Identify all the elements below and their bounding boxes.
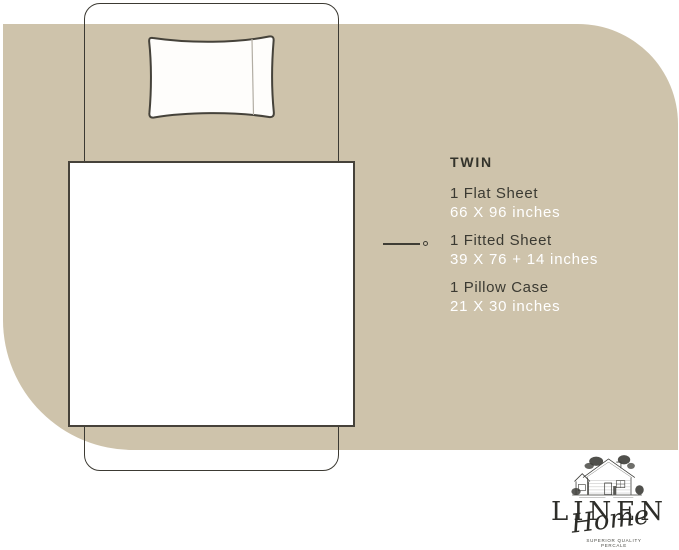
pointer-line: [383, 240, 428, 247]
spec-value: 39 X 76 + 14 inches: [450, 250, 670, 269]
pillow-case-icon: [146, 31, 277, 121]
spec-row-flat-sheet: 1 Flat Sheet 66 X 96 inches: [450, 184, 670, 222]
brand-logo: LINEN Home SUPERIOR QUALITY PERCALE: [540, 450, 674, 550]
spec-label: 1 Flat Sheet: [450, 184, 670, 203]
spec-list: TWIN 1 Flat Sheet 66 X 96 inches 1 Fitte…: [450, 152, 670, 325]
spec-value: 66 X 96 inches: [450, 203, 670, 222]
spec-label: 1 Pillow Case: [450, 278, 670, 297]
flat-sheet-shape: [68, 161, 355, 427]
pointer-line-stroke: [383, 243, 420, 245]
brand-tagline: SUPERIOR QUALITY PERCALE: [554, 538, 674, 548]
pointer-dot-icon: [423, 241, 428, 246]
size-title: TWIN: [450, 152, 670, 172]
brand-script-word: Home: [570, 502, 651, 537]
spec-label: 1 Fitted Sheet: [450, 231, 670, 250]
brand-tagline-line2: PERCALE: [554, 543, 674, 548]
spec-row-fitted-sheet: 1 Fitted Sheet 39 X 76 + 14 inches: [450, 231, 670, 269]
spec-value: 21 X 30 inches: [450, 297, 670, 316]
house-illustration-icon: [565, 452, 649, 500]
infographic-canvas: TWIN 1 Flat Sheet 66 X 96 inches 1 Fitte…: [0, 0, 679, 550]
spec-row-pillow-case: 1 Pillow Case 21 X 30 inches: [450, 278, 670, 316]
